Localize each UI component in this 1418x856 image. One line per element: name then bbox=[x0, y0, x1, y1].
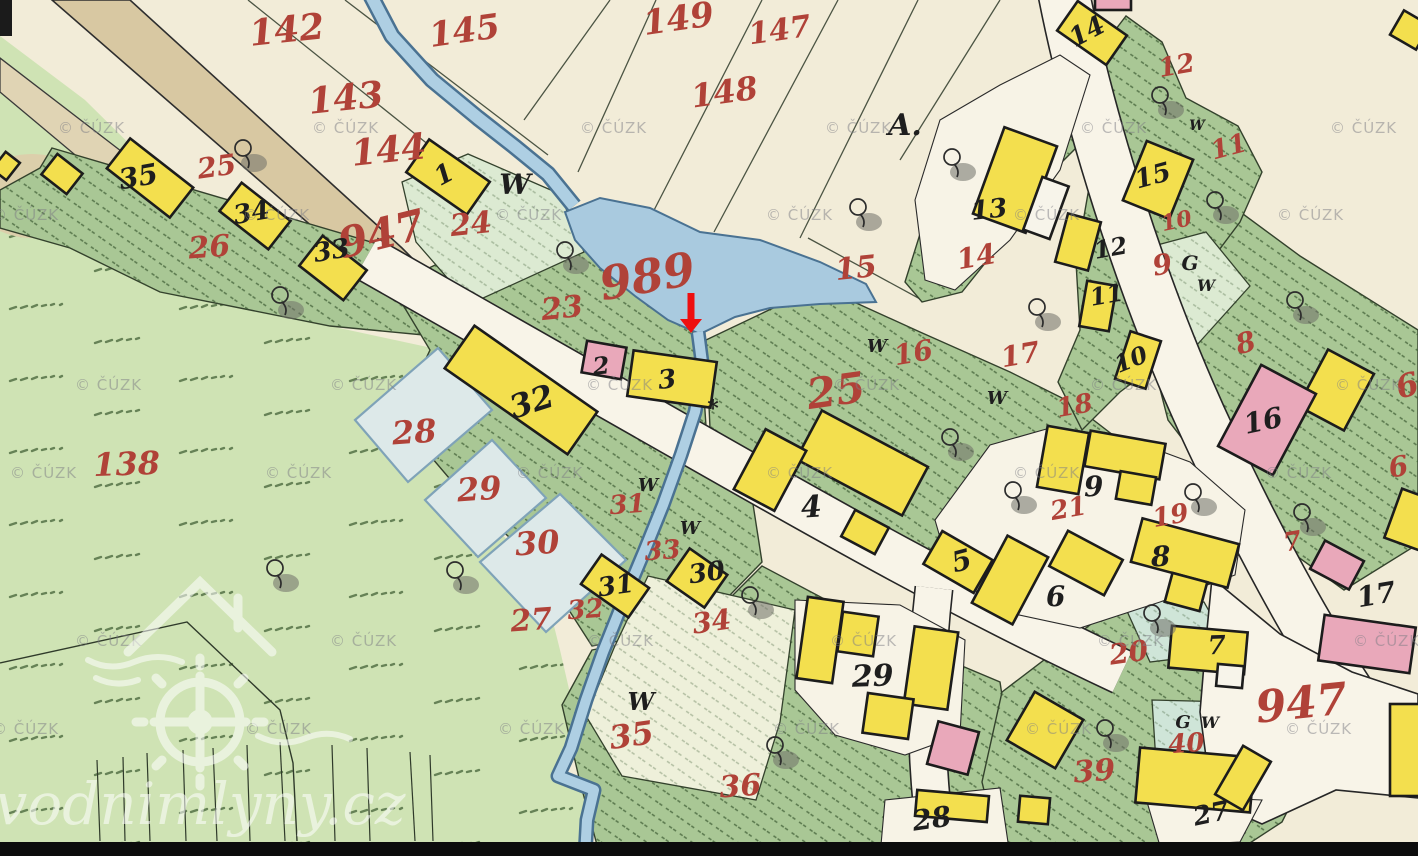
meadow-w-symbol: W bbox=[499, 168, 533, 201]
parcel-number-label: 40 bbox=[1167, 728, 1205, 760]
parcel-number-label: 35 bbox=[607, 713, 656, 757]
cuzk-watermark: © ČÚZK bbox=[1025, 719, 1092, 738]
parcel-number-label: 16 bbox=[891, 333, 935, 372]
cuzk-watermark: © ČÚZK bbox=[1277, 205, 1344, 224]
building bbox=[904, 626, 958, 709]
parcel-number-label: 142 bbox=[247, 5, 326, 55]
cuzk-watermark: © ČÚZK bbox=[773, 719, 840, 738]
letter-mark: G bbox=[1181, 251, 1198, 275]
cuzk-watermark: © ČÚZK bbox=[1265, 463, 1332, 482]
cuzk-watermark: © ČÚZK bbox=[330, 375, 397, 394]
building bbox=[1390, 704, 1418, 796]
cuzk-watermark: © ČÚZK bbox=[766, 205, 833, 224]
meadow-w-symbol: W bbox=[1197, 276, 1217, 295]
parcel-number-label: 23 bbox=[538, 289, 584, 328]
letter-mark: * bbox=[707, 396, 719, 422]
logo-text: vodnimlyny.cz bbox=[0, 770, 406, 838]
cuzk-watermark: © ČÚZK bbox=[1080, 118, 1147, 137]
cuzk-watermark: © ČÚZK bbox=[1013, 463, 1080, 482]
scan-corner-mark bbox=[0, 0, 12, 36]
cuzk-watermark: © ČÚZK bbox=[0, 719, 59, 738]
building-pink bbox=[1095, 0, 1131, 10]
building bbox=[1018, 796, 1050, 825]
house-number-label: 11 bbox=[1088, 277, 1126, 311]
cuzk-watermark: © ČÚZK bbox=[1330, 118, 1397, 137]
meadow-w-symbol: W bbox=[987, 388, 1009, 409]
cuzk-watermark: © ČÚZK bbox=[1335, 375, 1402, 394]
parcel-number-label: 31 bbox=[608, 489, 646, 521]
house-number-label: 3 bbox=[657, 364, 678, 396]
cuzk-watermark: © ČÚZK bbox=[1090, 375, 1157, 394]
parcel-number-label: 18 bbox=[1054, 388, 1095, 424]
building bbox=[1037, 426, 1089, 494]
parcel-number-label: 21 bbox=[1047, 491, 1089, 527]
cuzk-watermark: © ČÚZK bbox=[586, 375, 653, 394]
parcel-number-label: 26 bbox=[186, 229, 231, 267]
house-number-label: 35 bbox=[116, 157, 160, 196]
cuzk-watermark: © ČÚZK bbox=[10, 463, 77, 482]
parcel-number-label: 24 bbox=[447, 205, 493, 244]
house-number-label: 31 bbox=[596, 569, 636, 604]
house-number-label: 29 bbox=[850, 658, 894, 694]
parcel-number-label: 15 bbox=[833, 249, 878, 288]
building bbox=[862, 693, 913, 739]
parcel-number-label: 19 bbox=[1150, 498, 1191, 534]
parcel-number-label: 25 bbox=[194, 148, 238, 186]
house-number-label: 12 bbox=[1092, 230, 1130, 264]
parcel-number-label: 143 bbox=[306, 73, 385, 123]
cuzk-watermark: © ČÚZK bbox=[580, 118, 647, 137]
parcel-number-label: 33 bbox=[643, 535, 681, 567]
map-viewport: WWWWWWWWWA.GG* 1421431441451491471489899… bbox=[0, 0, 1418, 856]
cuzk-watermark: © ČÚZK bbox=[58, 118, 125, 137]
cuzk-watermark: © ČÚZK bbox=[833, 375, 900, 394]
parcel-number-label: 14 bbox=[954, 237, 998, 276]
cuzk-watermark: © ČÚZK bbox=[516, 463, 583, 482]
parcel-number-label: 17 bbox=[998, 335, 1043, 374]
cuzk-watermark: © ČÚZK bbox=[498, 719, 565, 738]
house-number-label: 4 bbox=[800, 489, 823, 525]
cuzk-watermark: © ČÚZK bbox=[243, 205, 310, 224]
house-number-label: 8 bbox=[1149, 540, 1171, 574]
parcel-number-label: 34 bbox=[690, 603, 733, 641]
cuzk-watermark: © ČÚZK bbox=[495, 205, 562, 224]
house-number-label: 33 bbox=[311, 233, 352, 269]
meadow-w-symbol: W bbox=[1189, 118, 1206, 134]
parcel-number-label: 30 bbox=[514, 523, 561, 564]
parcel-number-label: 12 bbox=[1156, 48, 1197, 84]
cuzk-watermark: © ČÚZK bbox=[1285, 719, 1352, 738]
meadow-w-symbol: W bbox=[628, 687, 657, 716]
parcel-number-label: 29 bbox=[455, 469, 503, 510]
cuzk-watermark: © ČÚZK bbox=[1097, 631, 1164, 650]
cuzk-watermark: © ČÚZK bbox=[830, 631, 897, 650]
house-number-label: 9 bbox=[1083, 470, 1104, 504]
scan-edge-bar bbox=[0, 842, 1418, 856]
parcel-number-label: 138 bbox=[93, 444, 161, 484]
cuzk-watermark: © ČÚZK bbox=[1353, 631, 1418, 650]
cuzk-watermark: © ČÚZK bbox=[766, 463, 833, 482]
building bbox=[1116, 471, 1156, 505]
meadow-w-symbol: W bbox=[867, 336, 889, 357]
house-number-label: 17 bbox=[1354, 575, 1399, 614]
house-number-label: 6 bbox=[1045, 580, 1066, 614]
parcel-number-label: 27 bbox=[508, 602, 553, 640]
cuzk-watermark: © ČÚZK bbox=[75, 375, 142, 394]
cuzk-watermark: © ČÚZK bbox=[1013, 205, 1080, 224]
house-number-label: 28 bbox=[909, 800, 953, 838]
cuzk-watermark: © ČÚZK bbox=[587, 631, 654, 650]
parcel-number-label: 28 bbox=[390, 412, 438, 453]
cuzk-watermark: © ČÚZK bbox=[825, 118, 892, 137]
cuzk-watermark: © ČÚZK bbox=[265, 463, 332, 482]
cuzk-watermark: © ČÚZK bbox=[0, 205, 59, 224]
building bbox=[1216, 664, 1244, 688]
parcel-number-label: 36 bbox=[718, 768, 762, 806]
meadow-w-symbol: W bbox=[680, 518, 702, 539]
house-number-label: 30 bbox=[687, 556, 727, 591]
parcel-number-label: 39 bbox=[1072, 753, 1116, 791]
house-number-label: 7 bbox=[1207, 631, 1226, 662]
meadow-w-symbol: W bbox=[1201, 713, 1221, 732]
cuzk-watermark: © ČÚZK bbox=[330, 631, 397, 650]
cadastral-map-canvas[interactable]: WWWWWWWWWA.GG* 1421431441451491471489899… bbox=[0, 0, 1418, 856]
cuzk-watermark: © ČÚZK bbox=[312, 118, 379, 137]
house-number-label: 13 bbox=[970, 193, 1009, 227]
